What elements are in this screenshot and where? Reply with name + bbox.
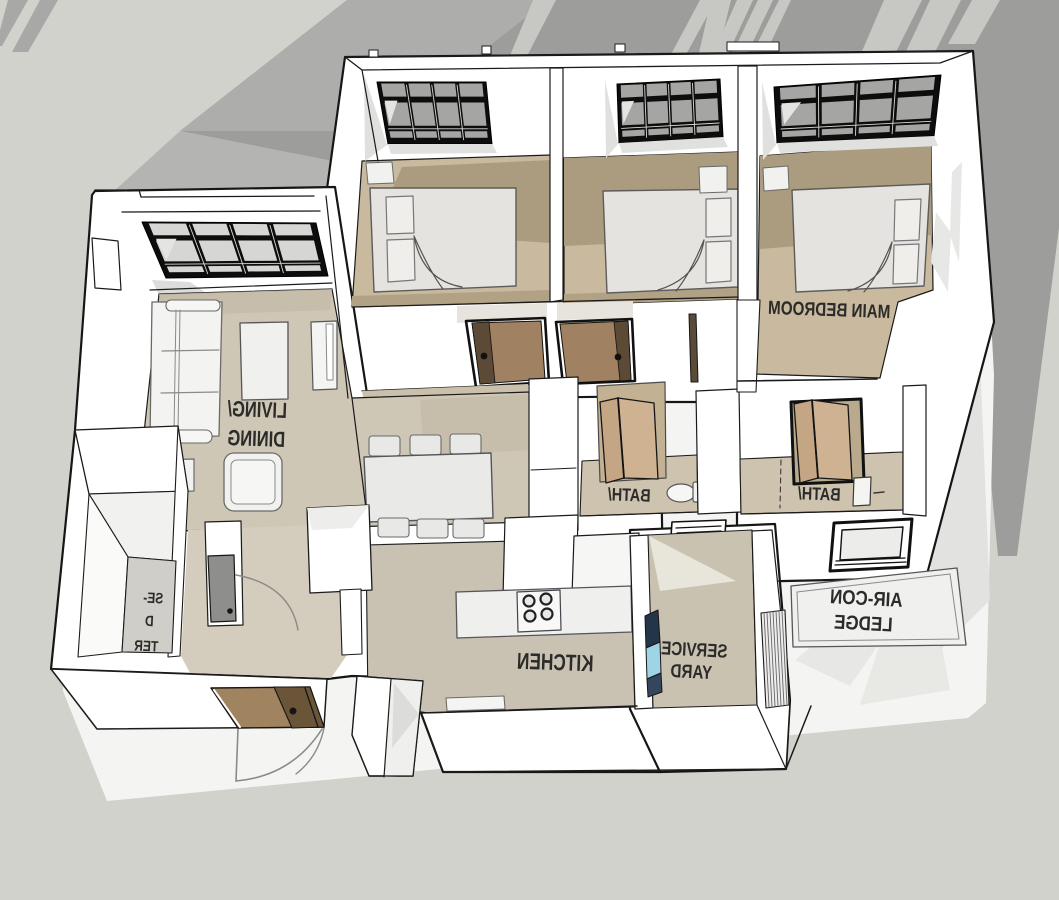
svg-text:BATH/: BATH/ bbox=[797, 484, 841, 505]
svg-text:LIVING/: LIVING/ bbox=[227, 397, 288, 424]
svg-text:YARD: YARD bbox=[670, 659, 713, 683]
svg-text:TER: TER bbox=[134, 637, 159, 655]
svg-text:MAIN BEDROOM: MAIN BEDROOM bbox=[768, 296, 891, 322]
svg-text:AIR-CON: AIR-CON bbox=[829, 585, 903, 611]
svg-text:D: D bbox=[144, 613, 154, 630]
svg-text:LEDGE: LEDGE bbox=[834, 610, 894, 636]
svg-text:BATH/: BATH/ bbox=[607, 485, 651, 506]
svg-text:SERVICE: SERVICE bbox=[661, 637, 728, 663]
svg-text:DINING: DINING bbox=[227, 426, 286, 453]
svg-text:KITCHEN: KITCHEN bbox=[517, 649, 594, 677]
svg-text:SE-: SE- bbox=[143, 589, 164, 607]
